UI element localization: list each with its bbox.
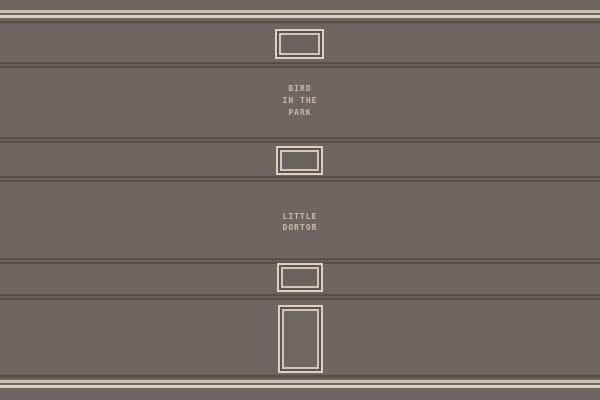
door[interactable]	[278, 305, 323, 373]
sign-line: LITTLE	[0, 211, 600, 222]
framed-window-2[interactable]	[276, 146, 323, 175]
sign-line: BIRD	[0, 83, 600, 95]
top-trim-shadow-line	[0, 21, 600, 23]
panel-groove-2	[0, 137, 600, 143]
wall-scene: BIRD IN THE PARK LITTLE DORTOR	[0, 0, 600, 400]
top-trim-line-1	[0, 10, 600, 13]
framed-window-1[interactable]	[275, 29, 324, 59]
framed-window-1-interior	[279, 33, 320, 55]
panel-groove-1	[0, 62, 600, 68]
framed-window-3-interior	[281, 267, 319, 288]
framed-window-2-interior	[280, 150, 319, 171]
sign-little-dortor: LITTLE DORTOR	[0, 211, 600, 233]
bottom-trim-shadow-line	[0, 375, 600, 378]
sign-line: IN THE	[0, 95, 600, 107]
sign-bird-in-the-park: BIRD IN THE PARK	[0, 83, 600, 119]
door-interior	[282, 309, 319, 369]
bottom-trim-line-1	[0, 380, 600, 383]
bottom-trim-line-2	[0, 385, 600, 388]
sign-line: PARK	[0, 107, 600, 119]
framed-window-3[interactable]	[277, 263, 323, 292]
panel-groove-3	[0, 176, 600, 182]
top-trim-line-2	[0, 15, 600, 18]
panel-groove-5	[0, 294, 600, 300]
sign-line: DORTOR	[0, 222, 600, 233]
